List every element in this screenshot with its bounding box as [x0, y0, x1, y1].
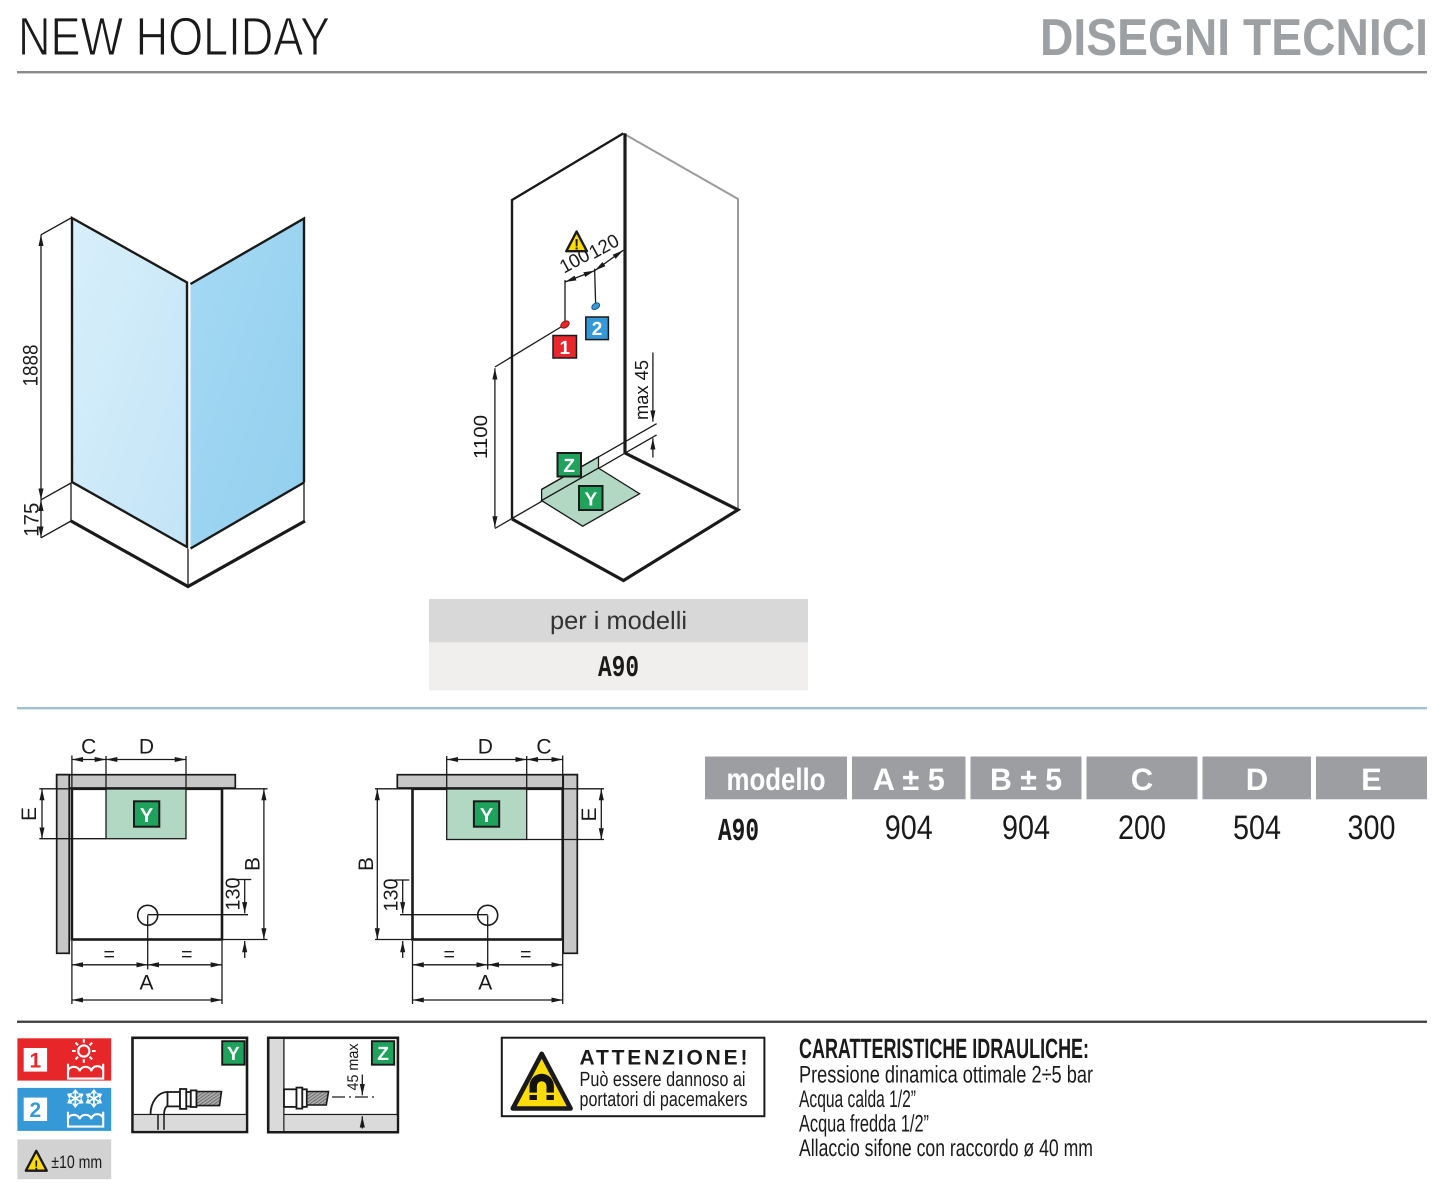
svg-text:C: C — [81, 736, 96, 759]
svg-text:modello: modello — [727, 762, 826, 797]
svg-text:1: 1 — [560, 338, 571, 359]
svg-text:D: D — [478, 736, 493, 759]
svg-text:B: B — [242, 857, 265, 871]
svg-text:CARATTERISTICHE IDRAULICHE:: CARATTERISTICHE IDRAULICHE: — [799, 1033, 1089, 1064]
svg-text:Z: Z — [377, 1044, 389, 1065]
svg-text:200: 200 — [1118, 809, 1166, 847]
svg-text:A ± 5: A ± 5 — [873, 762, 945, 797]
svg-text:D: D — [1246, 762, 1268, 797]
svg-text:NEW HOLIDAY: NEW HOLIDAY — [18, 7, 330, 67]
svg-text:B: B — [355, 857, 378, 871]
svg-text:Y: Y — [584, 490, 597, 511]
svg-text:175: 175 — [21, 503, 44, 537]
svg-text:E: E — [578, 807, 601, 821]
svg-text:max 45: max 45 — [632, 360, 653, 420]
svg-text:120: 120 — [586, 231, 623, 264]
svg-text:B ± 5: B ± 5 — [990, 762, 1062, 797]
svg-text:Y: Y — [227, 1044, 240, 1065]
svg-text:504: 504 — [1233, 809, 1281, 847]
svg-text:Acqua calda 1/2”: Acqua calda 1/2” — [799, 1086, 916, 1113]
svg-text:Pressione dinamica ottimale 2÷: Pressione dinamica ottimale 2÷5 bar — [799, 1061, 1093, 1088]
svg-text:2: 2 — [592, 319, 603, 340]
svg-text:904: 904 — [885, 809, 933, 847]
svg-text:portatori di pacemakers: portatori di pacemakers — [580, 1088, 748, 1111]
svg-text:Allaccio sifone con raccordo ø: Allaccio sifone con raccordo ø 40 mm — [799, 1135, 1093, 1162]
svg-text:Y: Y — [140, 805, 154, 827]
svg-text:D: D — [139, 736, 154, 759]
svg-text:Acqua fredda 1/2”: Acqua fredda 1/2” — [799, 1110, 929, 1137]
svg-text:1: 1 — [30, 1050, 42, 1073]
svg-text:E: E — [18, 807, 41, 821]
svg-text:A: A — [478, 972, 492, 995]
svg-text:2: 2 — [30, 1099, 42, 1122]
svg-text:A90: A90 — [718, 813, 759, 850]
svg-text:1100: 1100 — [471, 415, 492, 459]
svg-text:C: C — [1131, 762, 1153, 797]
svg-text:300: 300 — [1348, 809, 1396, 847]
svg-text:C: C — [536, 736, 551, 759]
svg-text:45 max: 45 max — [345, 1043, 362, 1090]
svg-text:A90: A90 — [598, 652, 639, 686]
svg-text:!: ! — [34, 1157, 38, 1172]
svg-text:per i modelli: per i modelli — [550, 607, 687, 635]
svg-text:A: A — [139, 972, 153, 995]
svg-text:904: 904 — [1002, 809, 1050, 847]
svg-text:!: ! — [574, 237, 579, 254]
svg-text:DISEGNI TECNICI: DISEGNI TECNICI — [1040, 9, 1428, 67]
svg-text:130: 130 — [223, 878, 245, 911]
svg-text:E: E — [1361, 762, 1382, 797]
svg-text:Z: Z — [563, 456, 575, 477]
svg-text:1888: 1888 — [19, 345, 42, 387]
svg-text:130: 130 — [381, 879, 403, 912]
svg-text:Y: Y — [480, 805, 494, 827]
svg-text:±10 mm: ±10 mm — [51, 1152, 102, 1172]
